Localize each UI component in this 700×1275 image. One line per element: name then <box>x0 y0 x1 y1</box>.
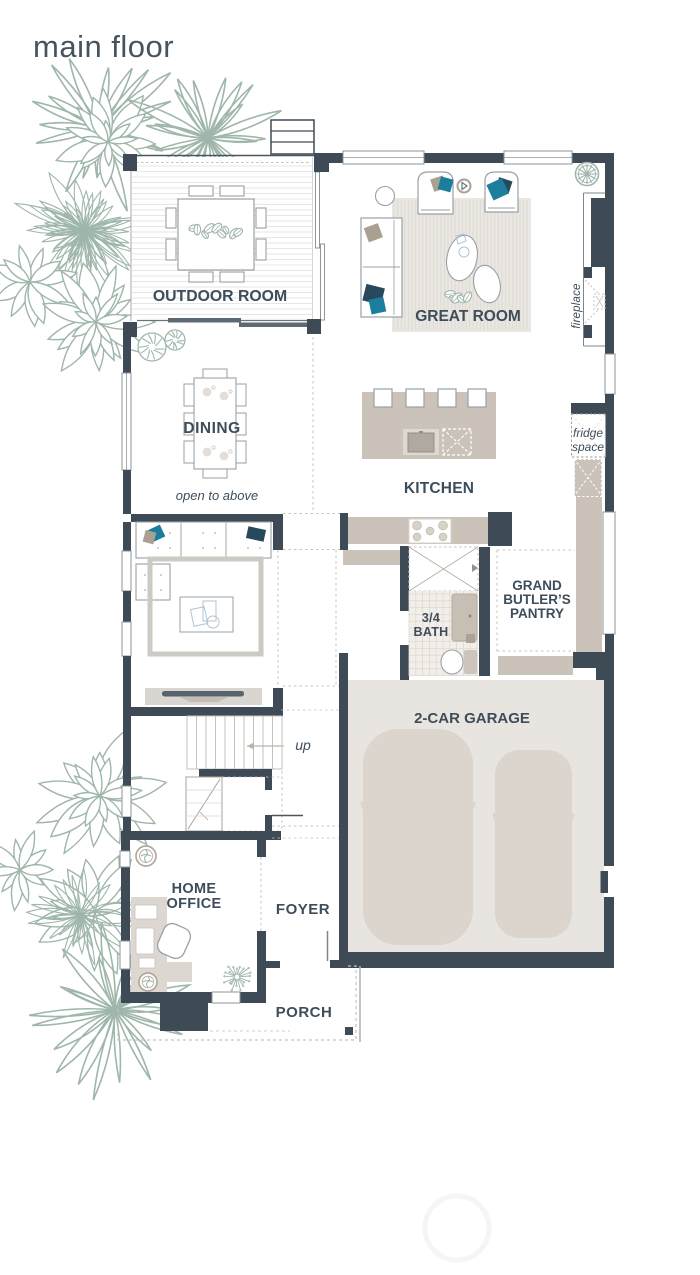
svg-text:DINING: DINING <box>183 420 240 437</box>
svg-text:space: space <box>572 440 604 454</box>
svg-text:GREAT ROOM: GREAT ROOM <box>415 308 521 325</box>
svg-text:PORCH: PORCH <box>276 1004 333 1021</box>
svg-text:fireplace: fireplace <box>571 283 583 328</box>
svg-text:BUTLER’S: BUTLER’S <box>503 592 571 607</box>
svg-text:HOME: HOME <box>172 881 217 897</box>
svg-text:fridge: fridge <box>573 426 603 440</box>
svg-text:BATH: BATH <box>414 625 449 639</box>
svg-text:GRAND: GRAND <box>512 578 562 593</box>
svg-text:PANTRY: PANTRY <box>510 606 564 621</box>
svg-text:2-CAR GARAGE: 2-CAR GARAGE <box>414 710 530 727</box>
svg-text:FOYER: FOYER <box>276 901 330 918</box>
svg-text:OUTDOOR ROOM: OUTDOOR ROOM <box>153 288 287 305</box>
svg-text:OFFICE: OFFICE <box>167 896 222 912</box>
svg-text:main floor: main floor <box>33 29 174 64</box>
svg-text:3/4: 3/4 <box>422 611 440 625</box>
svg-text:KITCHEN: KITCHEN <box>404 480 474 497</box>
svg-text:up: up <box>295 737 311 753</box>
svg-text:open to above: open to above <box>176 488 258 503</box>
